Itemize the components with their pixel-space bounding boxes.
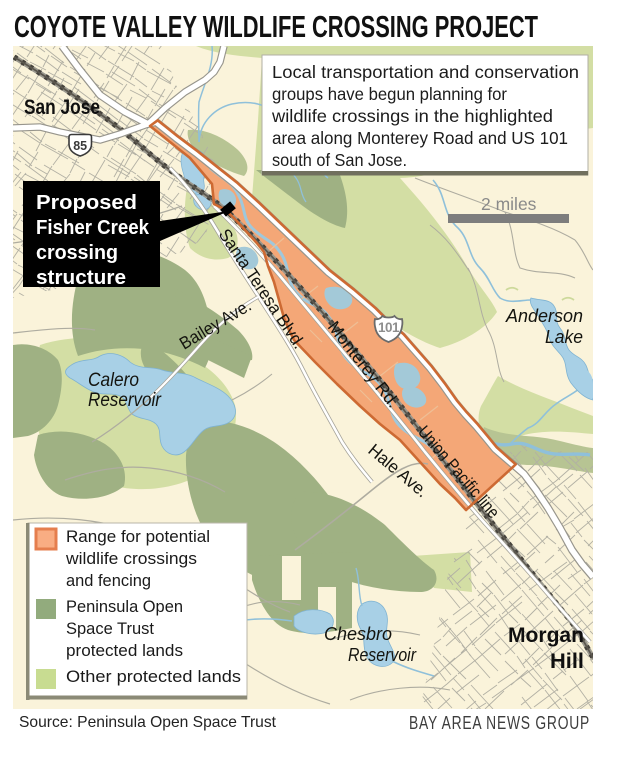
svg-text:COYOTE VALLEY WILDLIFE CROSSIN: COYOTE VALLEY WILDLIFE CROSSING PROJECT bbox=[14, 10, 538, 44]
svg-text:Proposed: Proposed bbox=[36, 192, 137, 214]
svg-text:groups have begun planning for: groups have begun planning for bbox=[272, 84, 507, 104]
svg-text:San Jose: San Jose bbox=[24, 95, 100, 119]
svg-text:Reservoir: Reservoir bbox=[88, 390, 162, 411]
svg-text:area along Monterey Road and U: area along Monterey Road and US 101 bbox=[272, 128, 568, 148]
svg-text:Peninsula Open: Peninsula Open bbox=[66, 597, 183, 616]
svg-text:Reservoir: Reservoir bbox=[348, 645, 417, 665]
svg-text:Local transportation and conse: Local transportation and conservation bbox=[272, 62, 579, 82]
svg-text:south of San Jose.: south of San Jose. bbox=[272, 150, 407, 170]
svg-text:BAY AREA NEWS GROUP: BAY AREA NEWS GROUP bbox=[409, 713, 590, 733]
svg-text:Lake: Lake bbox=[545, 326, 583, 347]
svg-text:85: 85 bbox=[73, 139, 87, 153]
svg-text:Space Trust: Space Trust bbox=[66, 619, 154, 638]
svg-text:Chesbro: Chesbro bbox=[324, 624, 392, 644]
svg-text:Hill: Hill bbox=[550, 649, 584, 673]
svg-text:wildlife crossings in the high: wildlife crossings in the highlighted bbox=[271, 106, 553, 126]
svg-text:Fisher Creek: Fisher Creek bbox=[36, 217, 150, 239]
svg-text:Calero: Calero bbox=[88, 370, 139, 391]
svg-text:Range for potential: Range for potential bbox=[66, 527, 210, 546]
svg-text:2 miles: 2 miles bbox=[481, 194, 537, 214]
svg-text:crossing: crossing bbox=[36, 242, 118, 264]
svg-text:Other protected lands: Other protected lands bbox=[66, 667, 241, 686]
svg-text:structure: structure bbox=[36, 267, 126, 289]
svg-text:Morgan: Morgan bbox=[508, 623, 584, 647]
svg-text:wildlife crossings: wildlife crossings bbox=[65, 549, 197, 568]
svg-text:and fencing: and fencing bbox=[66, 571, 151, 590]
svg-text:protected lands: protected lands bbox=[66, 641, 183, 660]
svg-text:101: 101 bbox=[378, 320, 400, 335]
svg-text:Anderson: Anderson bbox=[505, 305, 583, 326]
svg-text:Source: Peninsula Open Space T: Source: Peninsula Open Space Trust bbox=[19, 714, 277, 731]
